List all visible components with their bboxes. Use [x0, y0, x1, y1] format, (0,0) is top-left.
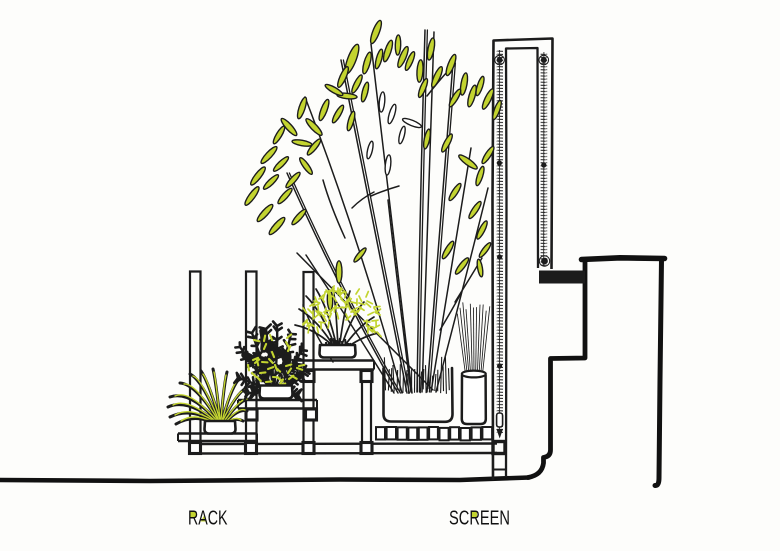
svg-text:RACK: RACK: [188, 507, 228, 530]
svg-text:SCREEN: SCREEN: [449, 507, 510, 530]
